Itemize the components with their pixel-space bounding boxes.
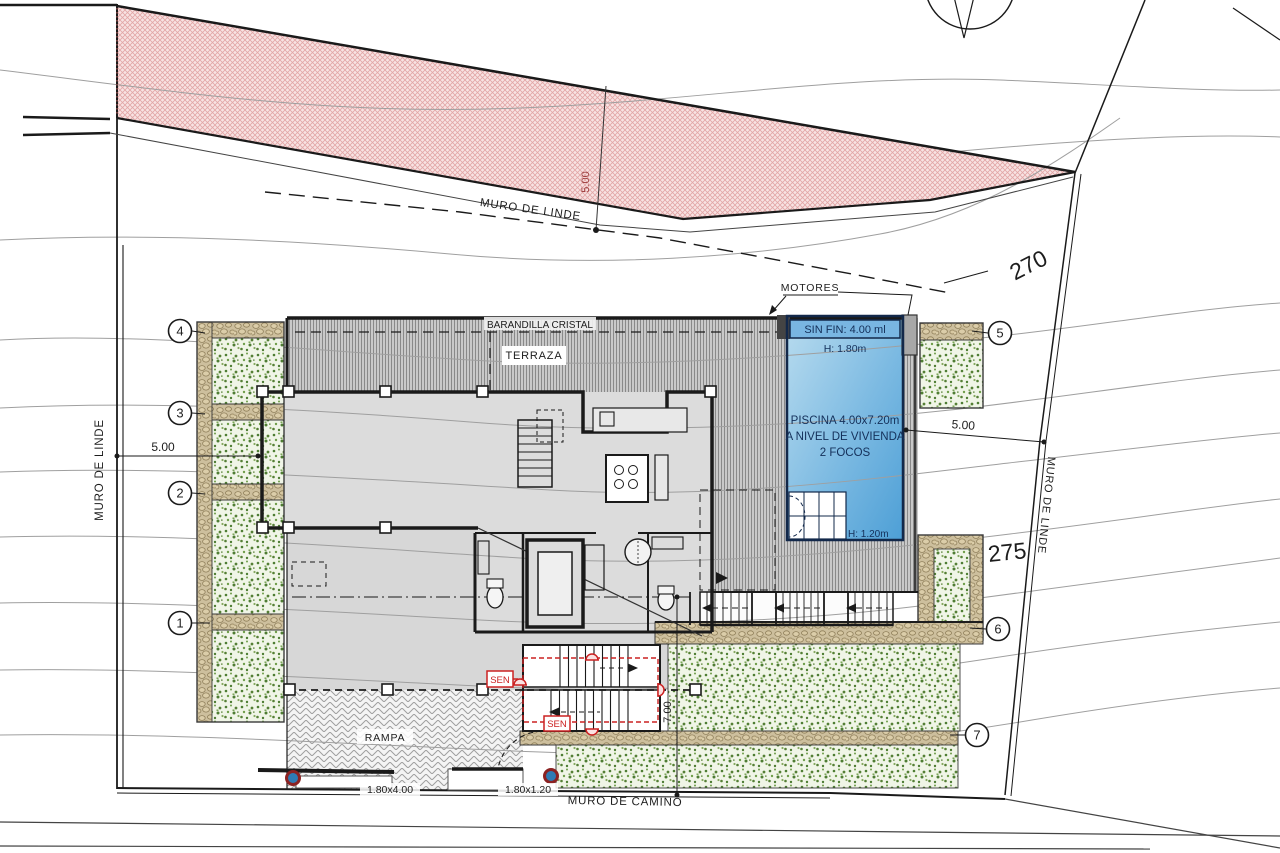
label-contour-275: 275 bbox=[987, 537, 1028, 567]
label-motores: MOTORES bbox=[781, 282, 840, 294]
label-barandilla: BARANDILLA CRISTAL bbox=[487, 320, 593, 331]
living-wing bbox=[262, 392, 490, 528]
svg-text:2: 2 bbox=[176, 486, 183, 501]
svg-text:7: 7 bbox=[973, 728, 980, 743]
site-plan: SIN FIN: 4.00 ml H: 1.80m H: 1.20m PISCI… bbox=[0, 0, 1280, 853]
svg-text:3: 3 bbox=[176, 406, 183, 421]
site-plan-drawing: SIN FIN: 4.00 ml H: 1.80m H: 1.20m PISCI… bbox=[0, 0, 1280, 853]
dim-gate-side: 1.80x1.20 bbox=[505, 784, 551, 796]
terrace-deck-right bbox=[712, 392, 787, 592]
label-muro-linde-left: MURO DE LINDE bbox=[94, 419, 106, 521]
dim-setback-right: 5.00 bbox=[951, 417, 976, 433]
kitchen-island bbox=[606, 455, 648, 502]
gate-pivot-side bbox=[545, 770, 558, 783]
label-rampa: RAMPA bbox=[365, 732, 406, 744]
deck-steps-band-base bbox=[700, 592, 893, 625]
dim-setback-top: 5.00 bbox=[580, 171, 592, 192]
garden-zone-se bbox=[668, 644, 960, 731]
gate-pivot-main bbox=[287, 772, 300, 785]
dim-gate-main: 1.80x4.00 bbox=[367, 784, 413, 796]
toilet-left bbox=[487, 586, 503, 608]
pool-edge-label: SIN FIN: 4.00 ml bbox=[804, 324, 885, 336]
pool-level: A NIVEL DE VIVIENDA bbox=[785, 431, 904, 443]
pool-steps bbox=[789, 492, 846, 539]
garden-zone-south bbox=[556, 745, 958, 788]
dim-drop-stairs: 7.00 bbox=[662, 701, 674, 722]
svg-text:4: 4 bbox=[176, 324, 183, 339]
dim-setback-left: 5.00 bbox=[151, 440, 175, 454]
label-muro-camino: MURO DE CAMINO bbox=[568, 795, 683, 809]
pool-name: PISCINA 4.00x7.20m bbox=[791, 415, 900, 427]
sensor-label-2: SEN bbox=[547, 719, 567, 730]
label-terraza: TERRAZA bbox=[506, 350, 563, 362]
svg-text:1: 1 bbox=[176, 616, 183, 631]
pool-depth-main: H: 1.80m bbox=[824, 343, 867, 355]
sensor-label-1: SEN bbox=[490, 675, 510, 686]
pool-lights: 2 FOCOS bbox=[820, 447, 871, 459]
pool-depth-steps: H: 1.20m bbox=[848, 529, 889, 540]
svg-text:6: 6 bbox=[994, 622, 1001, 637]
svg-text:5: 5 bbox=[996, 326, 1003, 341]
garden-zone-5 bbox=[920, 323, 983, 408]
